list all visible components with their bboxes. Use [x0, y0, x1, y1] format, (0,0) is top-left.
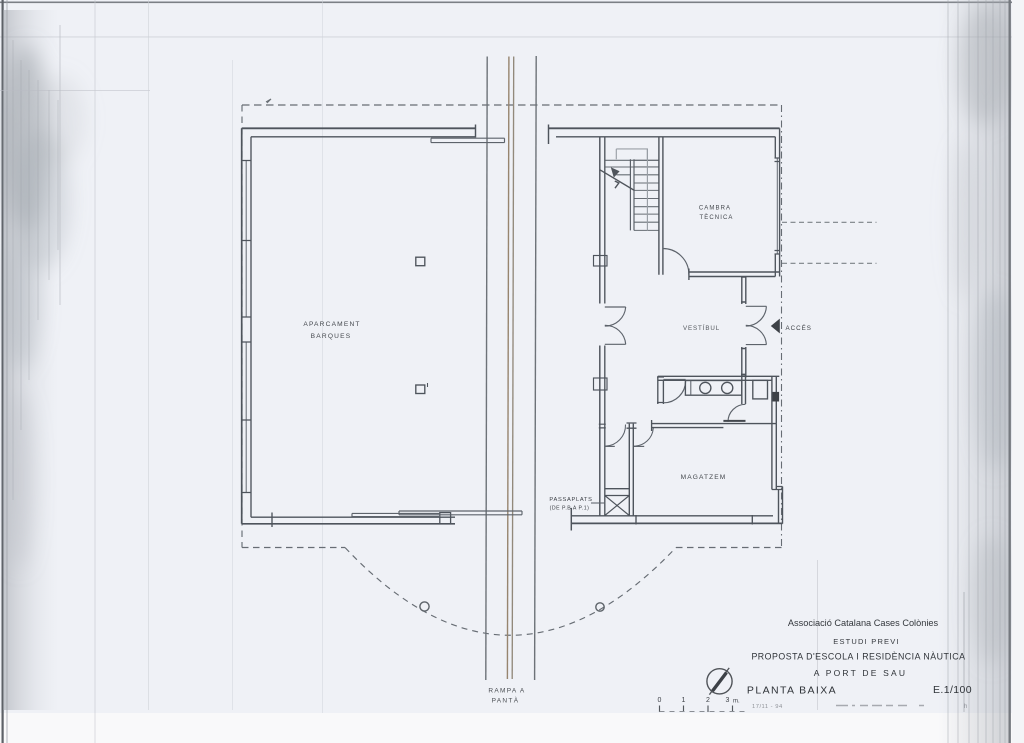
- svg-text:CAMBRA: CAMBRA: [699, 206, 731, 212]
- svg-text:PASSAPLATS: PASSAPLATS: [549, 497, 592, 503]
- svg-text:PROPOSTA D'ESCOLA I RESIDÈNCIA: PROPOSTA D'ESCOLA I RESIDÈNCIA NÀUTICA: [751, 652, 965, 662]
- svg-text:1: 1: [682, 697, 686, 704]
- svg-text:2: 2: [706, 697, 710, 704]
- svg-text:17/11 - 94: 17/11 - 94: [752, 704, 783, 710]
- svg-text:A PORT DE SAU: A PORT DE SAU: [814, 668, 907, 678]
- svg-text:0: 0: [658, 697, 662, 704]
- svg-text:PLANTA BAIXA: PLANTA BAIXA: [747, 685, 837, 697]
- svg-text:PANTÀ: PANTÀ: [492, 696, 520, 705]
- svg-text:(DE P.B A P.1): (DE P.B A P.1): [550, 505, 590, 511]
- svg-text:MAGATZEM: MAGATZEM: [681, 474, 727, 481]
- svg-text:E.1/100: E.1/100: [933, 684, 972, 696]
- svg-text:h: h: [964, 704, 967, 710]
- svg-text:BARQUES: BARQUES: [311, 333, 352, 340]
- svg-text:ESTUDI PREVI: ESTUDI PREVI: [833, 637, 900, 646]
- svg-text:3: 3: [726, 697, 730, 704]
- svg-text:RAMPA A: RAMPA A: [488, 688, 525, 695]
- svg-text:APARCAMENT: APARCAMENT: [303, 321, 360, 328]
- svg-text:Associació Catalana Cases Colò: Associació Catalana Cases Colònies: [788, 618, 939, 628]
- svg-text:ACCÉS: ACCÉS: [786, 325, 812, 332]
- svg-text:m.: m.: [733, 699, 740, 705]
- svg-text:TÈCNICA: TÈCNICA: [699, 214, 733, 221]
- svg-text:VESTÍBUL: VESTÍBUL: [683, 325, 720, 332]
